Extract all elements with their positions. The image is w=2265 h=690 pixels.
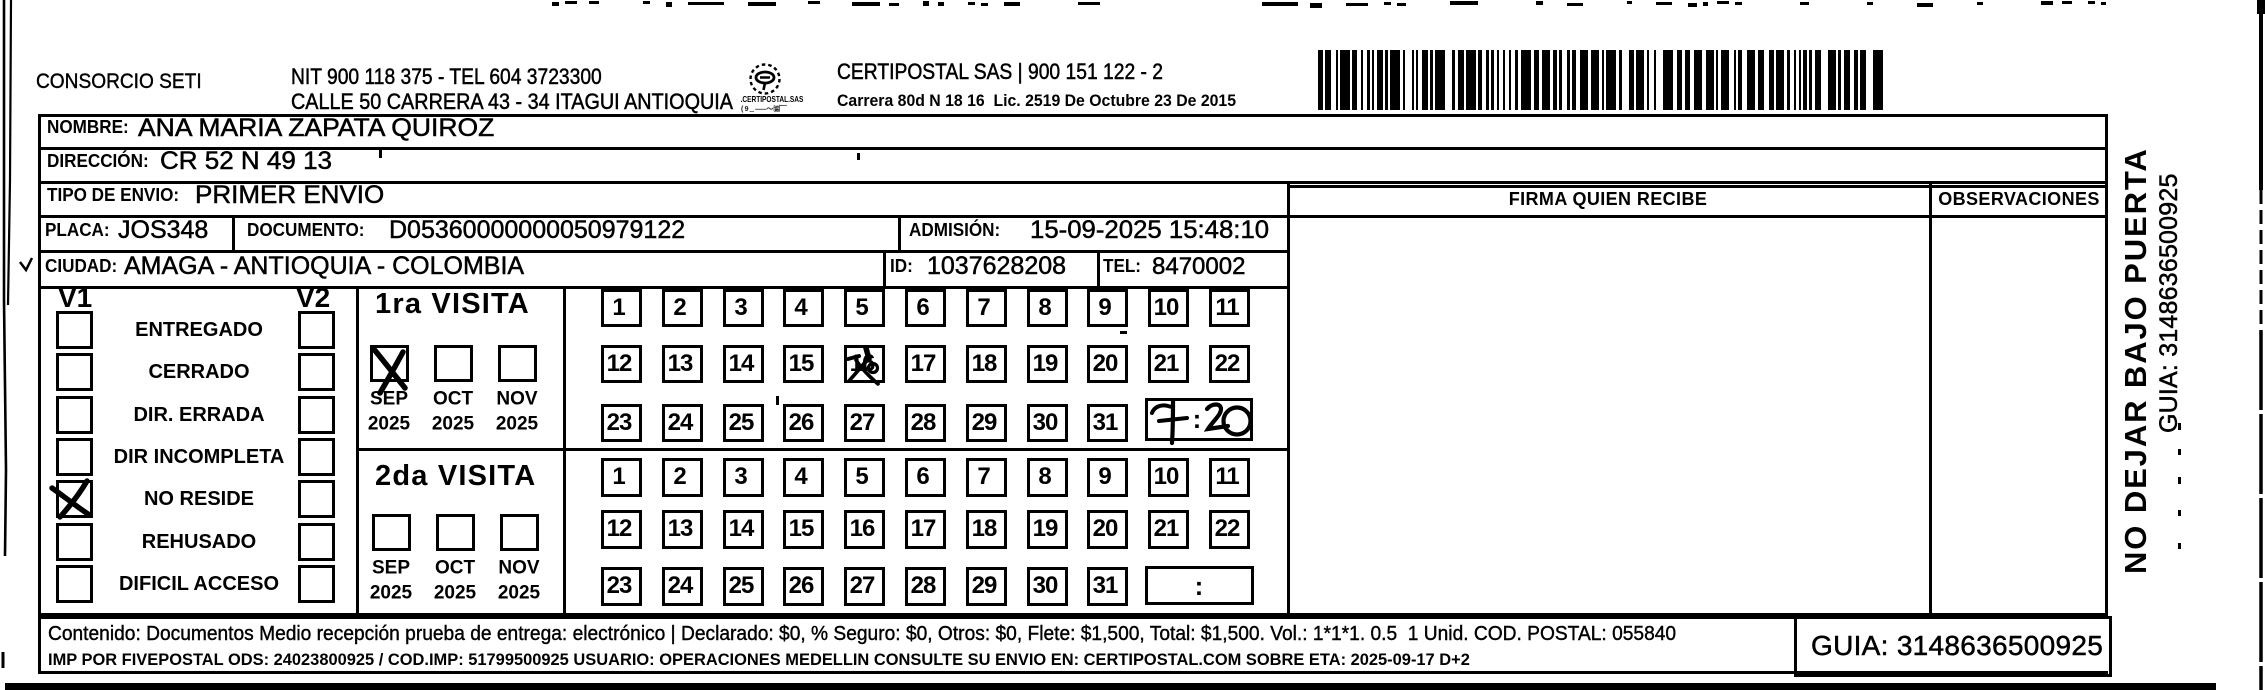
svg-text:( 9﹍⸺〜㈿﹋: ( 9﹍⸺〜㈿﹋: [741, 104, 788, 113]
svg-text:.CERTIPOSTAL.SAS: .CERTIPOSTAL.SAS: [741, 94, 804, 104]
